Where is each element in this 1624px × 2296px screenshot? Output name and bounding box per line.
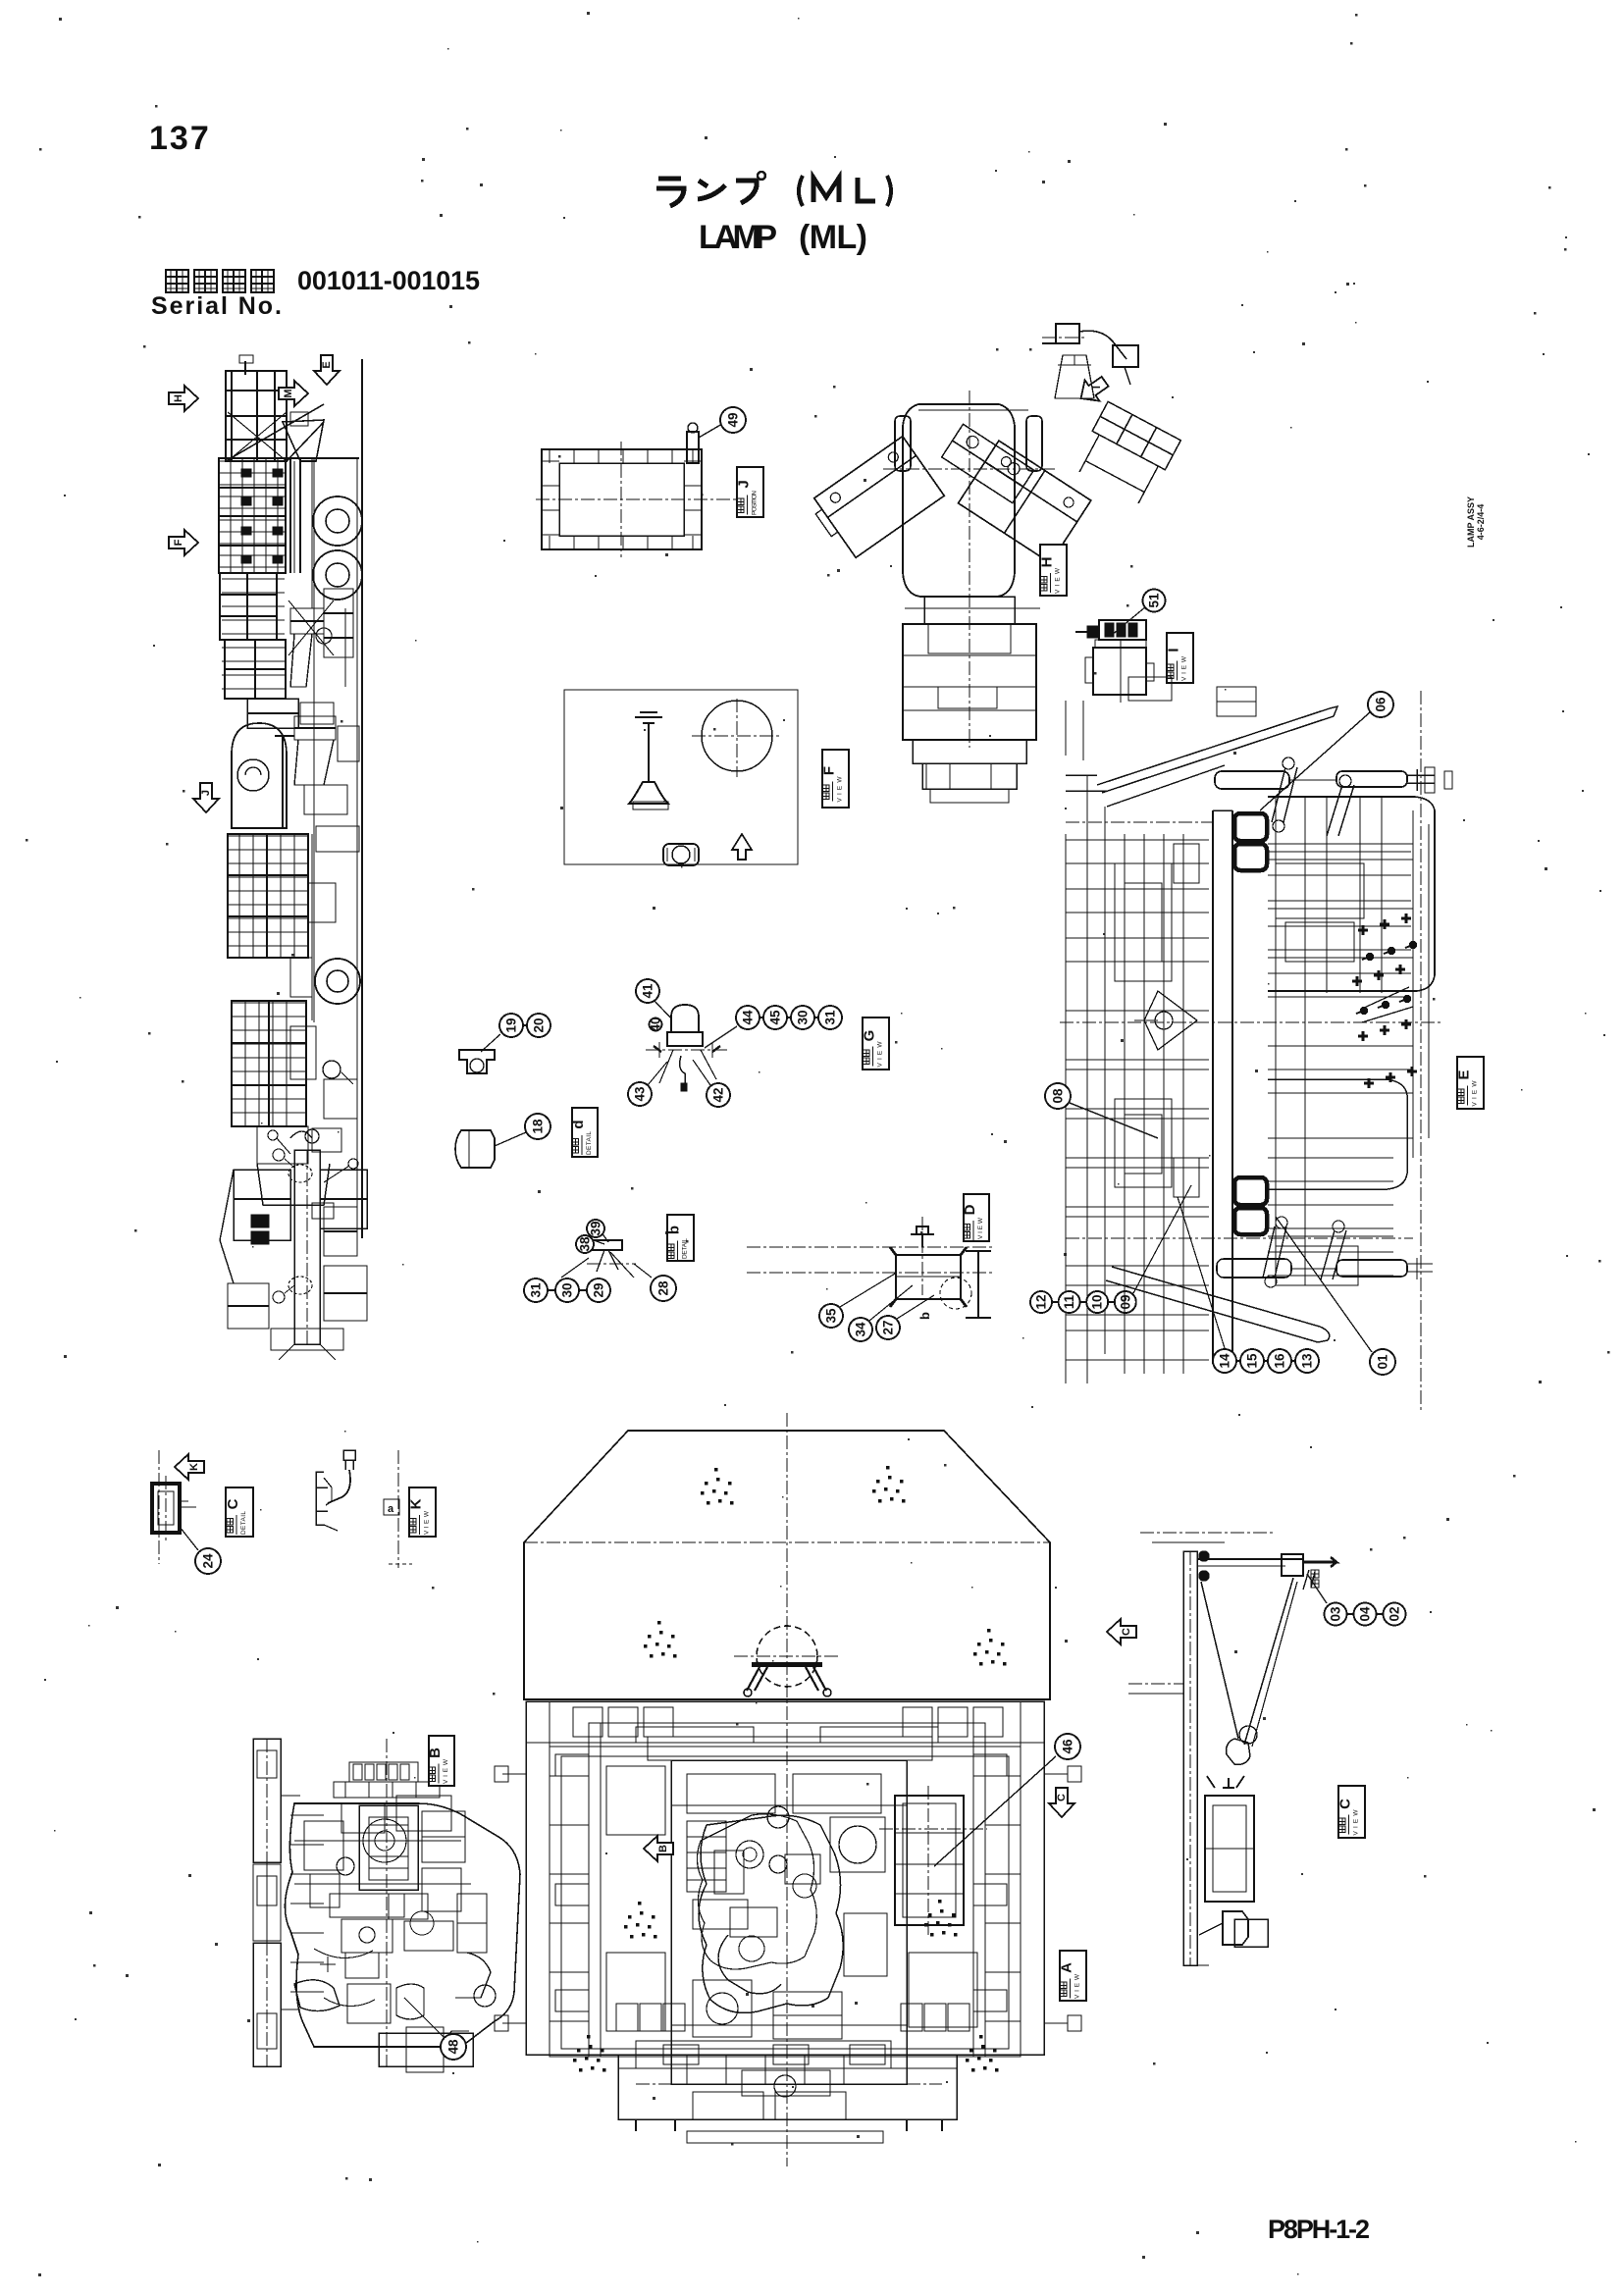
svg-text:24: 24 xyxy=(201,1553,216,1569)
svg-text:VIEW: VIEW xyxy=(424,1510,431,1535)
svg-text:VIEW: VIEW xyxy=(1181,655,1188,681)
svg-text:43: 43 xyxy=(633,1086,648,1102)
svg-text:G: G xyxy=(862,1030,878,1042)
svg-text:b: b xyxy=(917,1312,932,1320)
svg-text:D: D xyxy=(962,1204,978,1215)
svg-text:19: 19 xyxy=(504,1018,519,1032)
svg-text:VIEW: VIEW xyxy=(443,1758,449,1784)
svg-text:C: C xyxy=(1056,1794,1068,1801)
svg-text:12: 12 xyxy=(1034,1294,1049,1309)
svg-text:10: 10 xyxy=(1090,1294,1105,1309)
svg-text:VIEW: VIEW xyxy=(1055,567,1062,594)
svg-text:DETAIL: DETAIL xyxy=(240,1511,247,1535)
svg-text:18: 18 xyxy=(531,1119,546,1134)
svg-text:01: 01 xyxy=(1376,1354,1390,1370)
svg-text:E: E xyxy=(1456,1070,1473,1079)
svg-text:F: F xyxy=(173,539,184,546)
svg-text:K: K xyxy=(408,1498,425,1509)
svg-text:38: 38 xyxy=(578,1236,593,1252)
svg-text:I: I xyxy=(1166,648,1182,652)
svg-text:14: 14 xyxy=(1218,1353,1232,1369)
svg-text:Serial No.: Serial No. xyxy=(151,292,282,320)
svg-text:DETAIL: DETAIL xyxy=(586,1131,593,1155)
svg-text:48: 48 xyxy=(446,2039,461,2055)
svg-text:40: 40 xyxy=(649,1017,663,1031)
svg-text:E: E xyxy=(321,361,333,368)
svg-text:H: H xyxy=(173,394,184,402)
svg-text:31: 31 xyxy=(529,1282,544,1298)
svg-text:VIEW: VIEW xyxy=(837,776,844,803)
svg-text:B: B xyxy=(427,1748,444,1758)
svg-text:08: 08 xyxy=(1051,1088,1066,1104)
svg-text:001011-001015: 001011-001015 xyxy=(297,266,480,295)
svg-text:VIEW: VIEW xyxy=(877,1041,884,1068)
svg-text:C: C xyxy=(225,1498,241,1509)
svg-text:a: a xyxy=(388,1503,394,1515)
svg-text:F: F xyxy=(821,766,838,775)
svg-text:H: H xyxy=(1039,557,1056,568)
svg-text:4-6-2/4-4: 4-6-2/4-4 xyxy=(1476,504,1486,541)
svg-text:B: B xyxy=(657,1845,669,1852)
svg-text:51: 51 xyxy=(1147,593,1162,608)
svg-text:04: 04 xyxy=(1358,1606,1373,1622)
svg-text:34: 34 xyxy=(854,1322,868,1337)
svg-text:16: 16 xyxy=(1273,1353,1287,1369)
svg-text:20: 20 xyxy=(532,1018,547,1032)
svg-text:d: d xyxy=(570,1120,587,1128)
svg-text:M: M xyxy=(283,389,294,397)
svg-text:C: C xyxy=(1337,1799,1354,1809)
svg-text:11: 11 xyxy=(1062,1294,1076,1309)
svg-text:LAMP ASSY: LAMP ASSY xyxy=(1466,496,1476,548)
svg-text:27: 27 xyxy=(881,1320,896,1334)
svg-text:49: 49 xyxy=(726,412,741,427)
svg-text:41: 41 xyxy=(641,983,655,999)
svg-text:02: 02 xyxy=(1388,1606,1402,1621)
svg-text:13: 13 xyxy=(1300,1353,1315,1369)
svg-text:J: J xyxy=(200,790,212,796)
svg-text:06: 06 xyxy=(1374,697,1388,712)
svg-text:(ML): (ML) xyxy=(799,219,867,256)
svg-text:137: 137 xyxy=(149,120,211,157)
svg-text:29: 29 xyxy=(592,1282,606,1297)
svg-text:POSITION: POSITION xyxy=(752,491,759,515)
svg-text:35: 35 xyxy=(824,1308,839,1324)
svg-text:39: 39 xyxy=(589,1221,603,1235)
svg-text:09: 09 xyxy=(1118,1294,1132,1309)
svg-text:46: 46 xyxy=(1061,1739,1075,1754)
svg-text:15: 15 xyxy=(1245,1353,1260,1369)
svg-text:J: J xyxy=(736,480,753,488)
svg-text:42: 42 xyxy=(711,1087,726,1102)
svg-text:VIEW: VIEW xyxy=(1074,1973,1081,1999)
svg-text:30: 30 xyxy=(560,1282,575,1297)
svg-text:K: K xyxy=(188,1463,200,1471)
svg-text:VIEW: VIEW xyxy=(977,1217,984,1239)
svg-text:28: 28 xyxy=(656,1280,671,1296)
svg-text:VIEW: VIEW xyxy=(1472,1080,1479,1107)
svg-text:03: 03 xyxy=(1329,1606,1343,1622)
svg-text:C: C xyxy=(1121,1628,1132,1636)
svg-text:LAMP: LAMP xyxy=(699,219,777,256)
svg-text:VIEW: VIEW xyxy=(1353,1809,1360,1836)
svg-text:30: 30 xyxy=(796,1010,811,1024)
svg-text:44: 44 xyxy=(741,1010,756,1025)
svg-text:31: 31 xyxy=(823,1010,838,1025)
svg-text:P8PH-1-2: P8PH-1-2 xyxy=(1268,2215,1370,2244)
svg-text:45: 45 xyxy=(768,1010,783,1025)
svg-text:A: A xyxy=(1059,1962,1075,1973)
